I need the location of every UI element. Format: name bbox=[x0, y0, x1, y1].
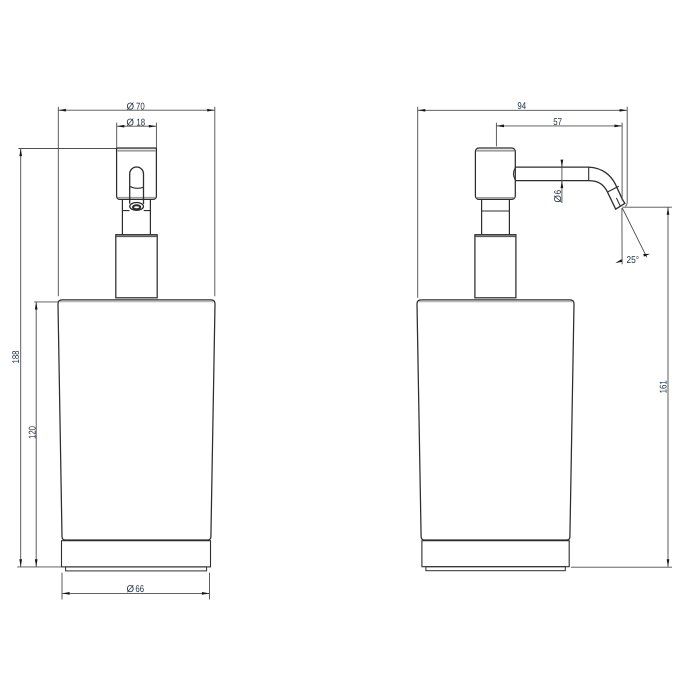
svg-text:66: 66 bbox=[135, 584, 144, 595]
svg-text:70: 70 bbox=[136, 101, 145, 112]
svg-text:94: 94 bbox=[517, 101, 526, 112]
svg-text:Ø: Ø bbox=[127, 584, 135, 595]
svg-text:Ø: Ø bbox=[127, 101, 135, 112]
svg-text:57: 57 bbox=[553, 117, 562, 128]
svg-text:161: 161 bbox=[658, 380, 669, 393]
svg-text:188: 188 bbox=[11, 350, 22, 364]
svg-text:25°: 25° bbox=[627, 255, 640, 266]
svg-text:18: 18 bbox=[136, 117, 145, 128]
svg-text:6: 6 bbox=[553, 190, 564, 195]
svg-text:120: 120 bbox=[27, 426, 38, 440]
svg-text:Ø: Ø bbox=[126, 117, 134, 128]
svg-text:Ø: Ø bbox=[553, 195, 564, 203]
